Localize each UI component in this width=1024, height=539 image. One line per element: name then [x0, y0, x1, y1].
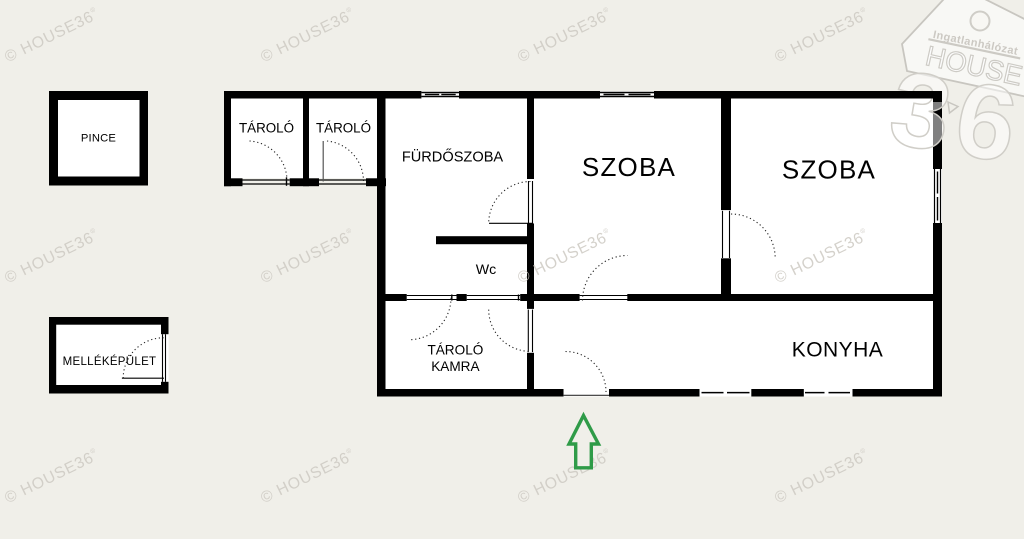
- svg-text:FÜRDŐSZOBA: FÜRDŐSZOBA: [402, 148, 504, 166]
- svg-text:SZOBA: SZOBA: [582, 152, 676, 182]
- svg-text:KONYHA: KONYHA: [792, 339, 883, 362]
- svg-text:MELLÉKÉPÜLET: MELLÉKÉPÜLET: [63, 355, 157, 368]
- svg-text:36: 36: [882, 48, 1024, 186]
- svg-text:TÁROLÓ: TÁROLÓ: [239, 121, 294, 136]
- svg-text:SZOBA: SZOBA: [782, 155, 876, 185]
- svg-text:PINCE: PINCE: [81, 133, 116, 145]
- svg-text:KAMRA: KAMRA: [431, 359, 480, 374]
- svg-text:TÁROLÓ: TÁROLÓ: [316, 121, 371, 136]
- svg-text:Wc: Wc: [476, 262, 497, 278]
- svg-text:TÁROLÓ: TÁROLÓ: [427, 343, 483, 358]
